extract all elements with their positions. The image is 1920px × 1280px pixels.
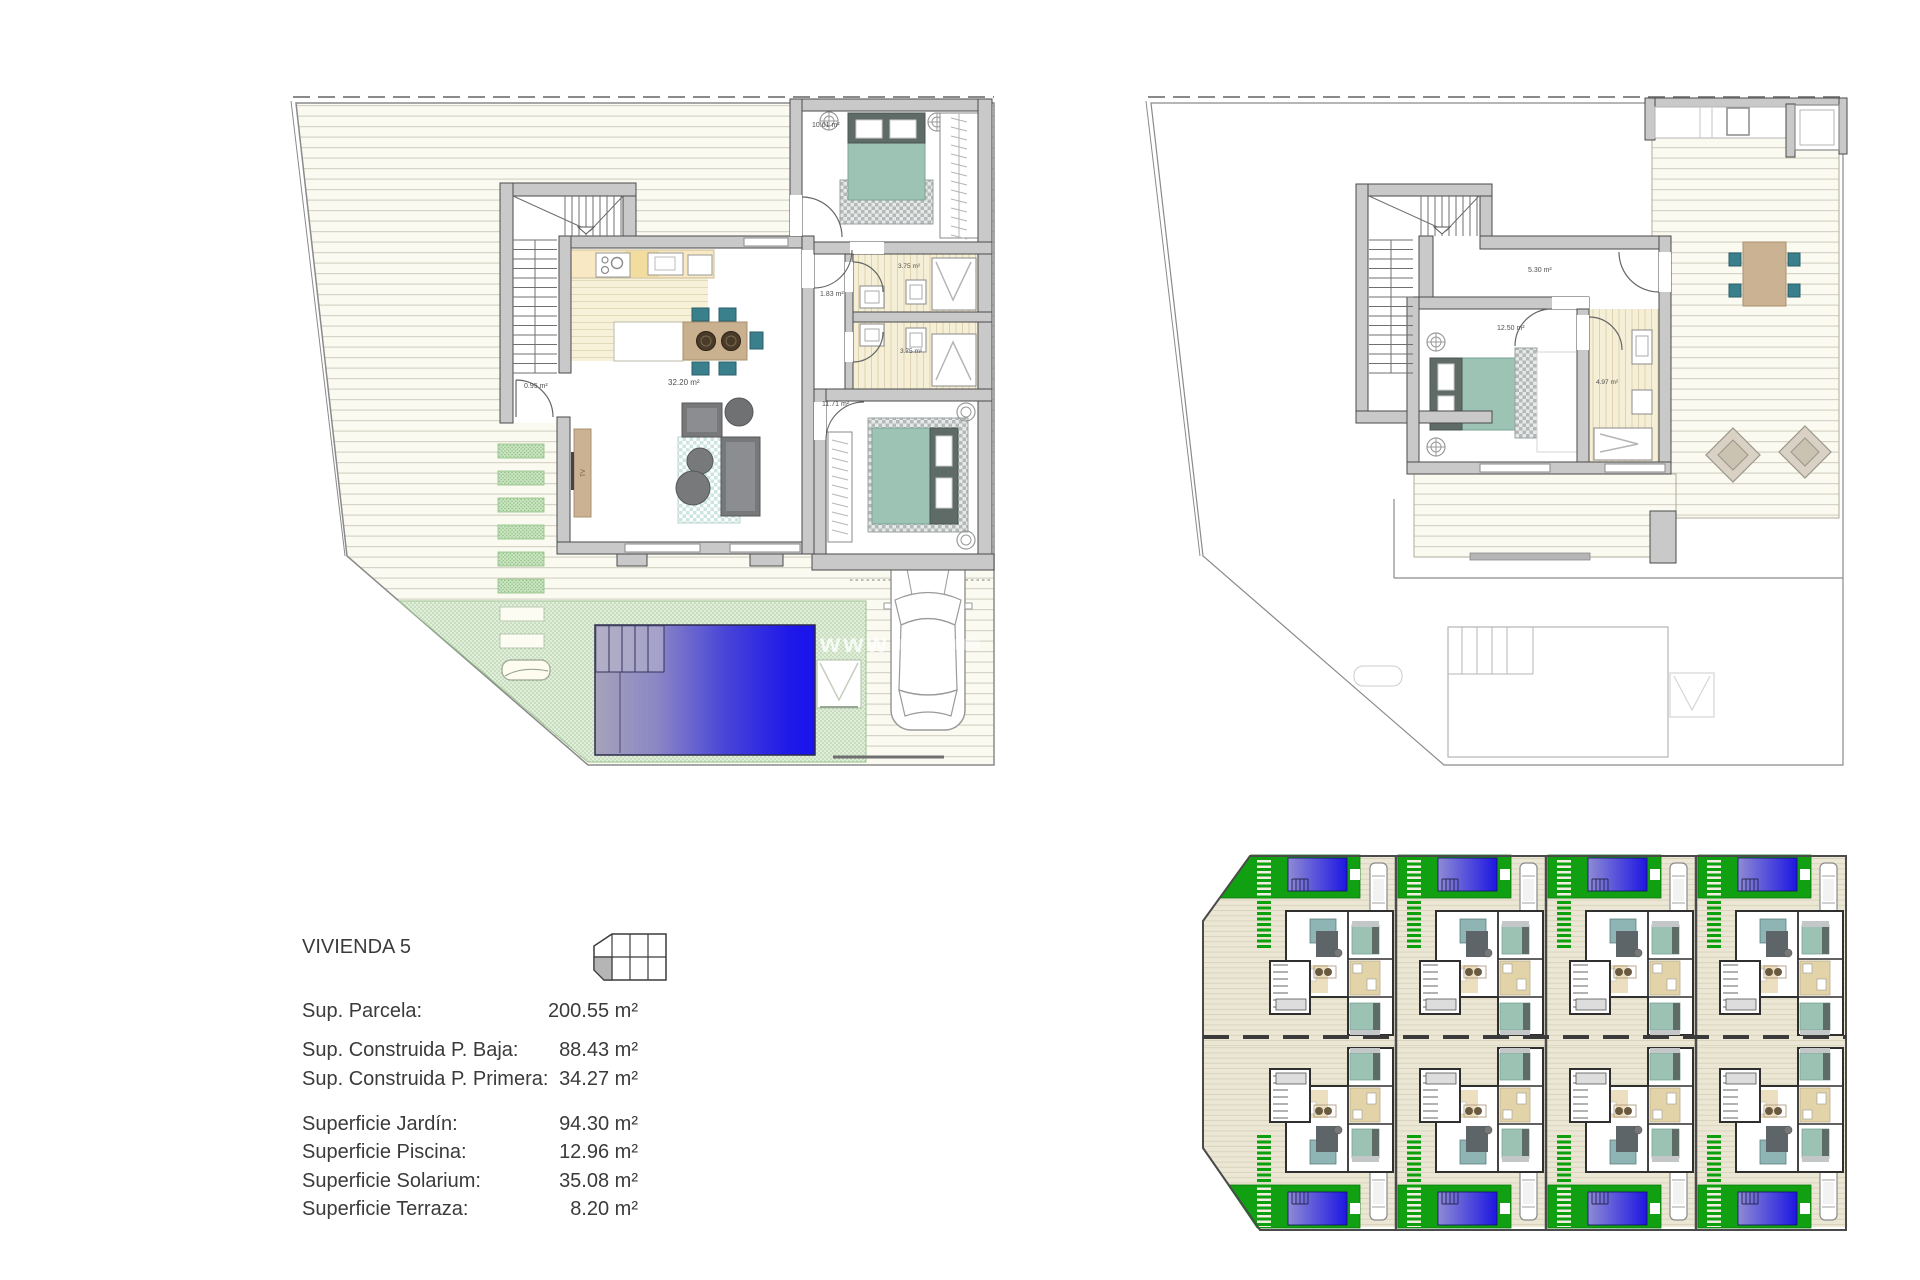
svg-text:35.08 m²: 35.08 m²	[559, 1170, 638, 1192]
svg-text:34.27 m²: 34.27 m²	[559, 1068, 638, 1090]
svg-text:3.75 m²: 3.75 m²	[900, 348, 923, 355]
svg-text:88.43 m²: 88.43 m²	[559, 1039, 638, 1061]
svg-text:10.61 m²: 10.61 m²	[812, 122, 840, 129]
svg-text:VIVIENDA 5: VIVIENDA 5	[302, 936, 411, 958]
svg-text:5.30 m²: 5.30 m²	[1528, 267, 1552, 274]
svg-text:1.83 m²: 1.83 m²	[820, 291, 844, 298]
svg-text:4.97 m²: 4.97 m²	[1596, 379, 1619, 386]
svg-text:Sup. Parcela:: Sup. Parcela:	[302, 1000, 422, 1022]
svg-text:94.30 m²: 94.30 m²	[559, 1113, 638, 1135]
svg-text:TV: TV	[581, 469, 587, 477]
svg-text:Sup. Construida P. Baja:: Sup. Construida P. Baja:	[302, 1039, 518, 1061]
svg-text:Superficie Piscina:: Superficie Piscina:	[302, 1141, 467, 1163]
svg-text:Superficie Jardín:: Superficie Jardín:	[302, 1113, 458, 1135]
svg-text:Sup. Construida P. Primera:: Sup. Construida P. Primera:	[302, 1068, 548, 1090]
svg-text:Superficie Solarium:: Superficie Solarium:	[302, 1170, 481, 1192]
svg-text:8.20 m²: 8.20 m²	[570, 1198, 638, 1220]
svg-text:12.50 m²: 12.50 m²	[1497, 325, 1525, 332]
svg-text:32.20 m²: 32.20 m²	[668, 378, 700, 387]
svg-text:12.96 m²: 12.96 m²	[559, 1141, 638, 1163]
svg-text:www: www	[819, 628, 890, 658]
svg-text:3.75 m²: 3.75 m²	[898, 263, 921, 270]
svg-text:0.95 m²: 0.95 m²	[524, 383, 548, 390]
svg-text:Superficie Terraza:: Superficie Terraza:	[302, 1198, 468, 1220]
svg-text:11.71 m²: 11.71 m²	[822, 401, 850, 408]
svg-text:200.55 m²: 200.55 m²	[548, 1000, 638, 1022]
